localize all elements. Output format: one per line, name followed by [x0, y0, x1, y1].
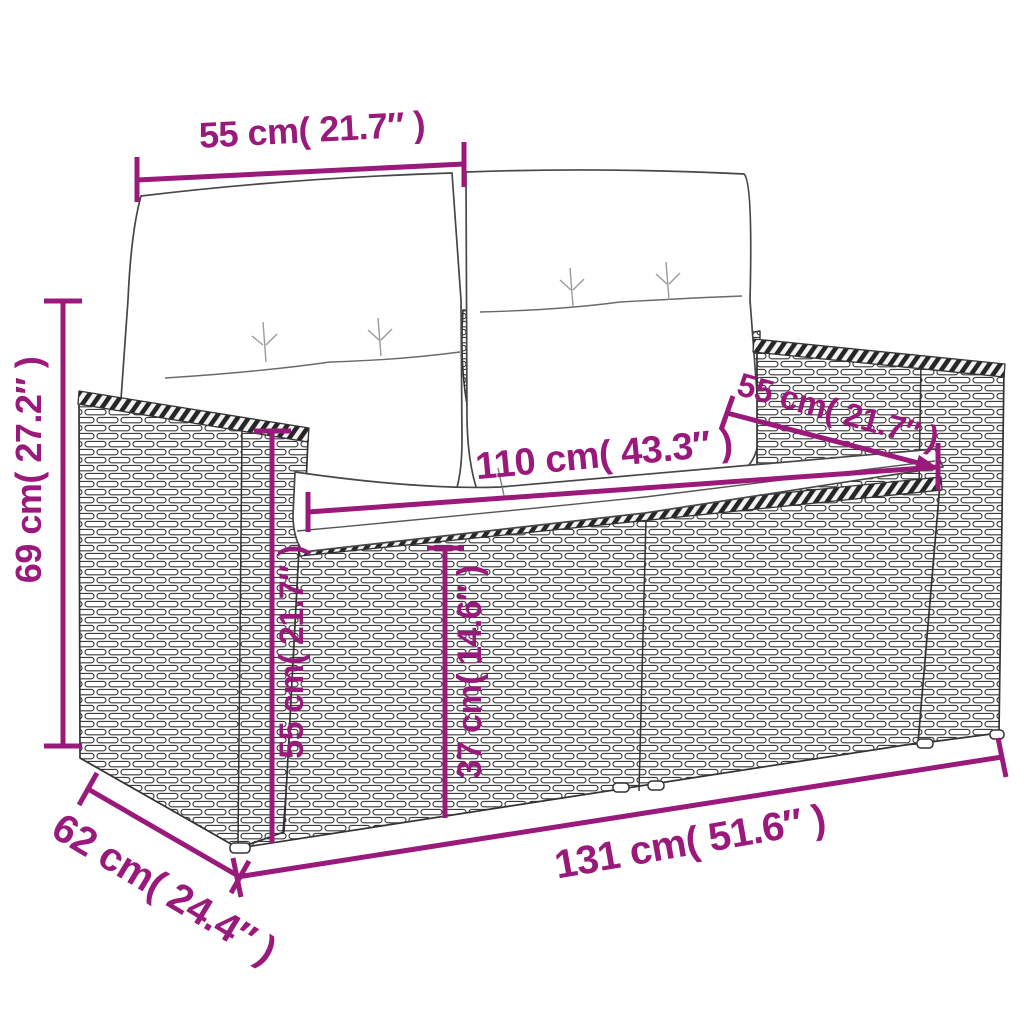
dim-label-armrest-height: 55 cm( 21.7″ ) [275, 545, 309, 758]
dim-line-overall-height [44, 301, 82, 746]
sofa-body [78, 170, 1005, 853]
dim-label-overall-height: 69 cm( 27.2″ ) [11, 357, 47, 583]
dimension-diagram-canvas: 55 cm( 21.7″ ) 69 cm( 27.2″ ) 110 cm( 43… [0, 0, 1024, 1024]
dim-label-seat-height: 37 cm( 14.6″ ) [453, 565, 487, 778]
